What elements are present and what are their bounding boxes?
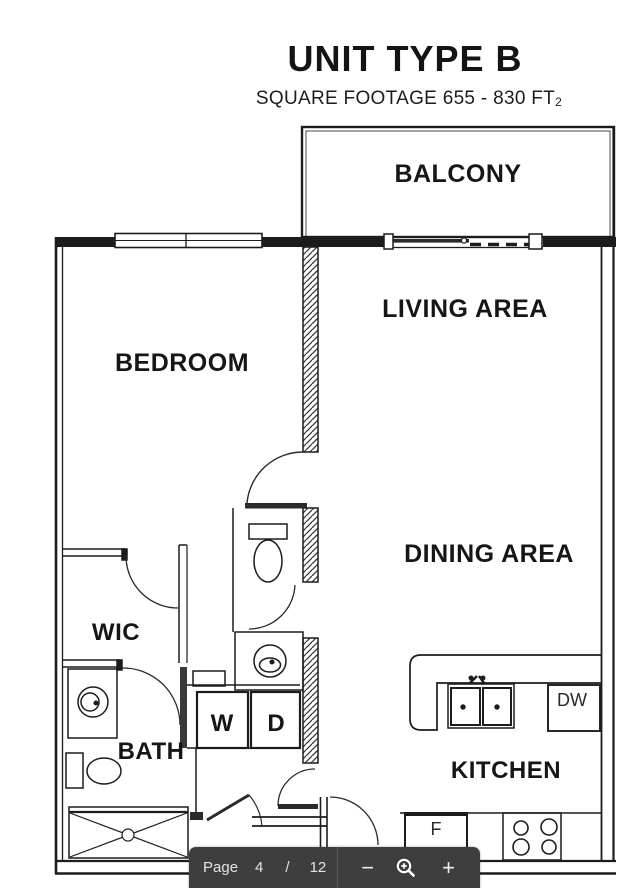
powder-room (233, 508, 303, 690)
zoom-tool-button[interactable] (394, 856, 418, 880)
zoom-out-button[interactable]: − (361, 857, 374, 879)
balcony-label: BALCONY (394, 160, 521, 188)
dishwasher-label: DW (557, 690, 587, 710)
magnifier-plus-icon (395, 857, 417, 879)
bath-label: BATH (118, 738, 185, 765)
page-separator: / (285, 859, 289, 876)
viewer-toolbar: Page 4 / 12 − + (189, 847, 480, 888)
current-page-field[interactable]: 4 (255, 859, 263, 876)
total-pages: 12 (310, 859, 327, 876)
fridge-label: F (431, 819, 442, 839)
bedroom-window (115, 234, 262, 248)
zoom-in-button[interactable]: + (442, 857, 455, 879)
washer-label: W (211, 710, 234, 737)
bedroom-door (245, 452, 307, 509)
bedroom-label: BEDROOM (115, 349, 249, 377)
toolbar-divider (337, 847, 338, 888)
dining-area-label: DINING AREA (404, 540, 574, 568)
living-area-label: LIVING AREA (382, 295, 548, 323)
floor-plan: BALCONY LIVING AREA BEDROOM DINING AREA … (0, 0, 640, 888)
viewer-page: UNIT TYPE B SQUARE FOOTAGE 655 - 830 FT2 (0, 0, 640, 888)
kitchen-label: KITCHEN (451, 757, 561, 784)
dryer-label: D (267, 710, 284, 737)
page-label: Page (203, 859, 238, 876)
wic-label: WIC (92, 619, 140, 646)
